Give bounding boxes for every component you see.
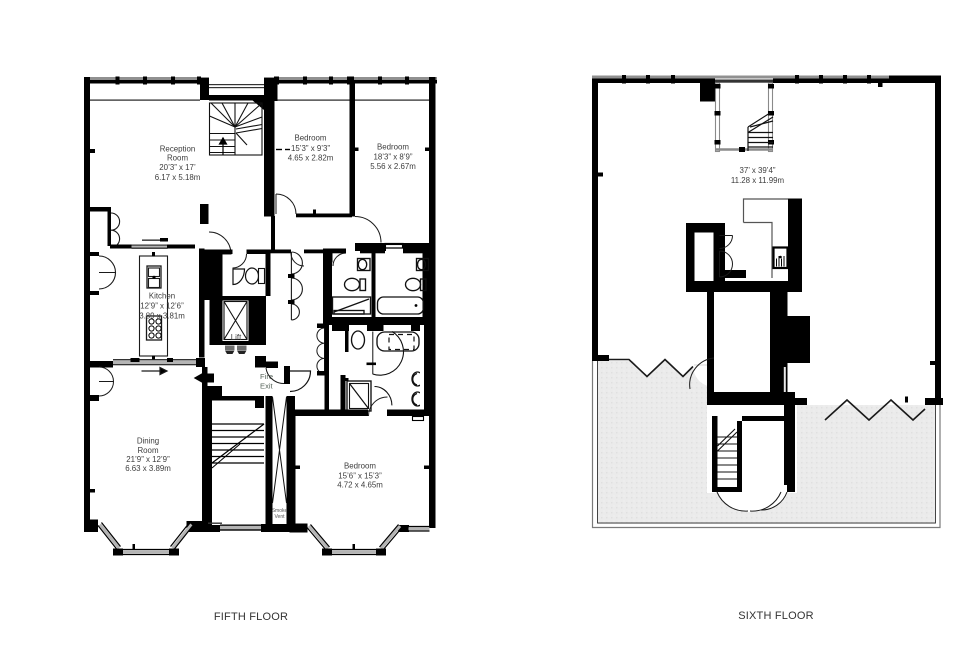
- svg-text:SIXTH FLOOR: SIXTH FLOOR: [738, 610, 814, 622]
- svg-text:20’3” x 17’: 20’3” x 17’: [159, 163, 196, 172]
- svg-text:FIFTH FLOOR: FIFTH FLOOR: [214, 611, 288, 623]
- svg-text:15’6” x 15’3”: 15’6” x 15’3”: [338, 471, 382, 480]
- svg-text:Room: Room: [167, 154, 188, 163]
- svg-text:37’ x 39’4”: 37’ x 39’4”: [739, 166, 775, 175]
- svg-text:Vent: Vent: [274, 514, 285, 520]
- svg-text:11.28 x 11.99m: 11.28 x 11.99m: [731, 176, 785, 185]
- svg-text:Room: Room: [137, 446, 158, 455]
- svg-text:Reception: Reception: [160, 144, 196, 153]
- svg-text:21’9” x 12’9”: 21’9” x 12’9”: [126, 455, 170, 464]
- svg-text:Lift: Lift: [231, 333, 242, 342]
- svg-text:Dining: Dining: [137, 436, 159, 445]
- svg-text:Kitchen: Kitchen: [149, 291, 175, 300]
- svg-text:Fire: Fire: [260, 372, 273, 381]
- svg-text:6.63 x 3.89m: 6.63 x 3.89m: [125, 464, 171, 473]
- svg-text:3.89 x 3.81m: 3.89 x 3.81m: [139, 311, 185, 320]
- svg-text:Exit: Exit: [260, 382, 274, 391]
- svg-text:18’3” x 8’9”: 18’3” x 8’9”: [373, 153, 412, 162]
- svg-text:5.56 x 2.67m: 5.56 x 2.67m: [370, 162, 416, 171]
- svg-text:12’9” x 12’6”: 12’9” x 12’6”: [140, 302, 184, 311]
- svg-text:6.17 x 5.18m: 6.17 x 5.18m: [155, 173, 201, 182]
- svg-text:4.72 x 4.65m: 4.72 x 4.65m: [337, 481, 383, 490]
- svg-text:Bedroom: Bedroom: [377, 143, 409, 152]
- svg-text:15’3” x 9’3”: 15’3” x 9’3”: [291, 144, 330, 153]
- svg-text:Bedroom: Bedroom: [344, 462, 376, 471]
- svg-text:4.65 x 2.82m: 4.65 x 2.82m: [288, 153, 334, 162]
- svg-text:Bedroom: Bedroom: [294, 134, 326, 143]
